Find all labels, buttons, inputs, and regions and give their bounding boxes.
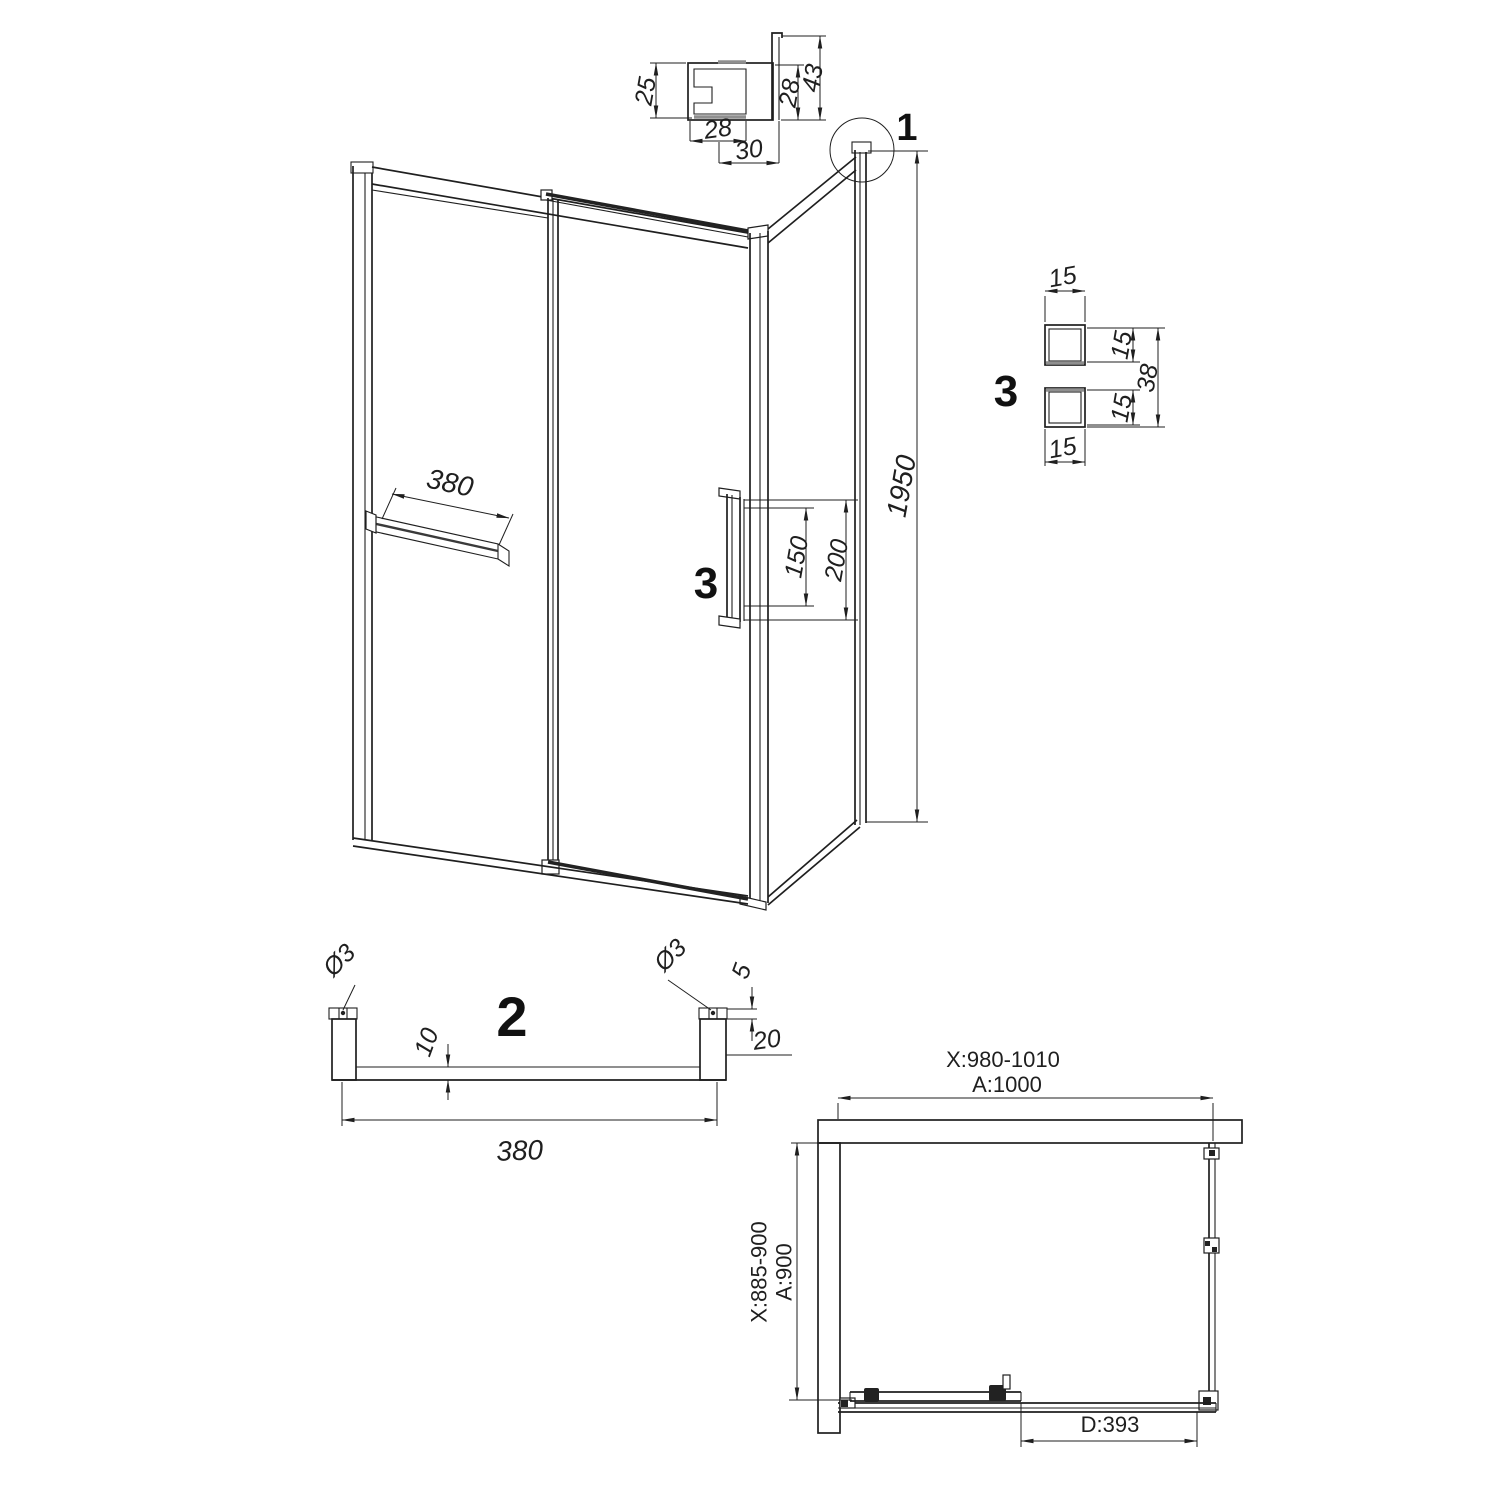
detail2-dia-left: Ø3 (317, 939, 361, 983)
towel-bar-section-view: Ø3 Ø3 5 10 20 380 2 (317, 934, 792, 1167)
main-callout-1: 1 (896, 107, 917, 149)
detail2-dim-380: 380 (496, 1134, 544, 1167)
technical-drawing-canvas: 25 28 43 28 30 (0, 0, 1500, 1500)
detail3-dim-38: 38 (1132, 362, 1164, 394)
handle-section-view: 15 15 38 15 15 3 (994, 261, 1165, 466)
detail3-dim-top-15: 15 (1046, 261, 1078, 293)
plan-depth-label: A:900 (772, 1243, 797, 1301)
main-height-dim-1950: 1950 (881, 452, 922, 519)
detail3-dim-right-upper-15: 15 (1106, 329, 1138, 361)
drawing-svg: 25 28 43 28 30 (0, 0, 1500, 1500)
plan-depth-range-label: X:885-900 (747, 1221, 772, 1323)
main-handle-dim-200: 200 (819, 537, 854, 584)
detail1-dim-25: 25 (629, 75, 662, 108)
plan-width-label: A:1000 (972, 1072, 1042, 1097)
isometric-front-view: 380 150 200 3 1950 1 (351, 107, 928, 910)
detail3-callout-3: 3 (994, 367, 1018, 416)
detail2-dim-5: 5 (726, 960, 757, 983)
main-callout-3: 3 (694, 559, 718, 608)
detail2-callout-2: 2 (496, 985, 527, 1048)
detail2-dim-10: 10 (409, 1024, 445, 1060)
main-handle-dim-150: 150 (779, 534, 814, 580)
detail1-dim-43: 43 (797, 62, 829, 94)
wall-top (818, 1120, 1242, 1143)
main-shelf-dim-380: 380 (424, 463, 477, 503)
detail1-dim-30: 30 (733, 134, 765, 166)
detail3-dim-bottom-15: 15 (1046, 432, 1078, 464)
detail2-dim-20: 20 (750, 1024, 783, 1056)
detail3-dim-right-lower-15: 15 (1106, 392, 1138, 424)
plan-door-dim-label: D:393 (1081, 1412, 1140, 1437)
top-plan-view: X:980-1010 A:1000 X:885-900 A:900 D:393 (747, 1047, 1242, 1447)
wall-profile-section-view: 25 28 43 28 30 (629, 33, 829, 166)
wall-left (818, 1143, 840, 1433)
detail2-dia-right: Ø3 (648, 934, 692, 978)
plan-width-range-label: X:980-1010 (946, 1047, 1060, 1072)
detail1-dim-28-bottom: 28 (701, 113, 734, 145)
